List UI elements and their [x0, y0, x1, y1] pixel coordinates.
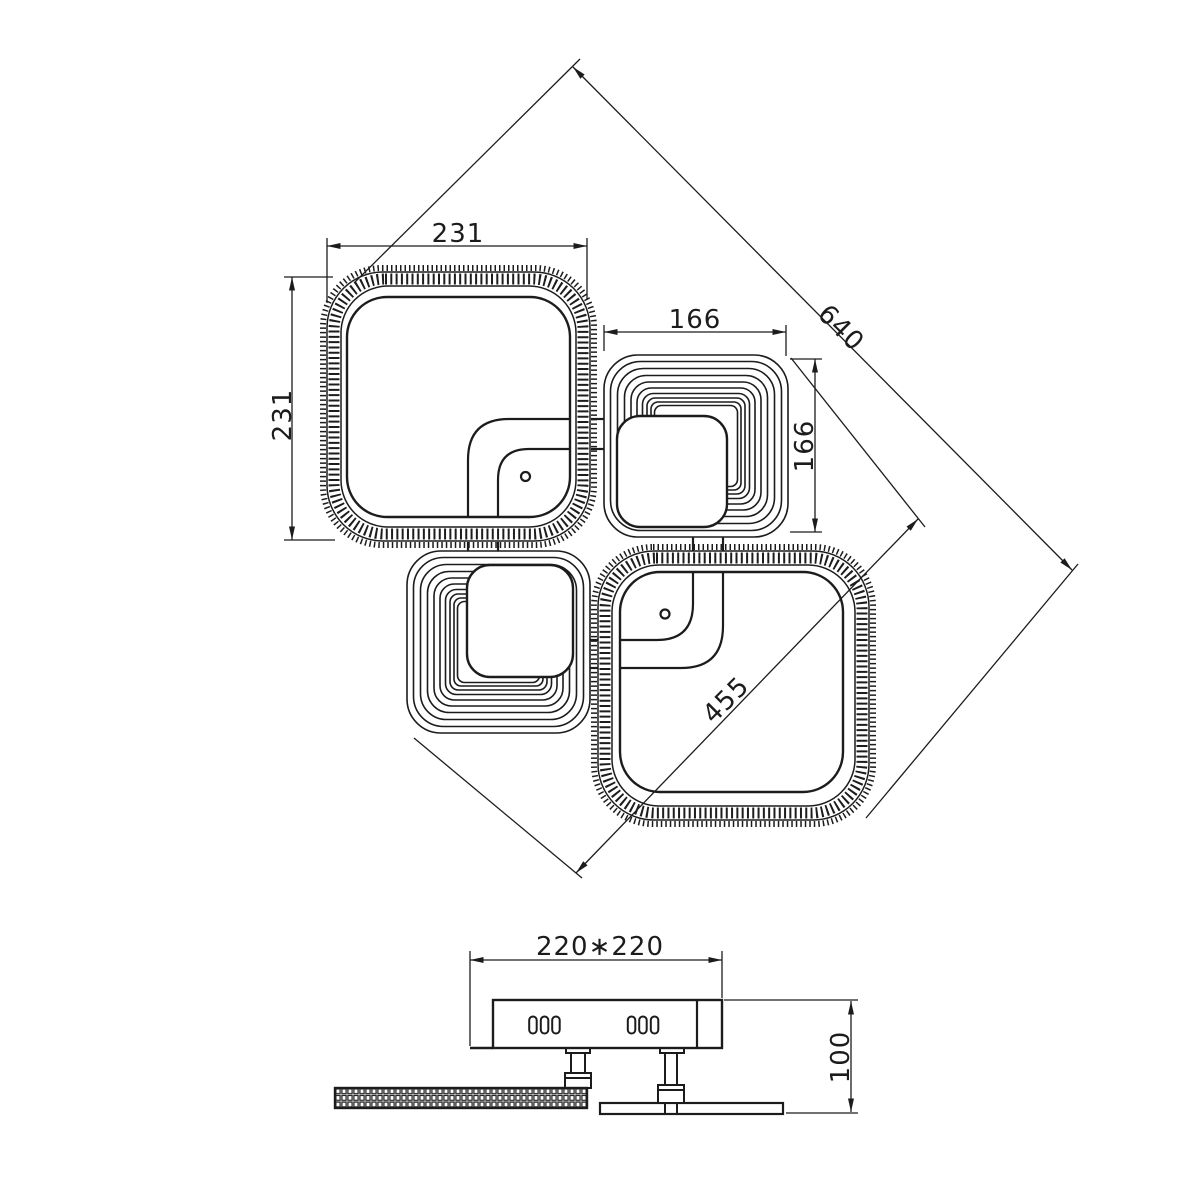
stem-collar: [658, 1085, 684, 1103]
module-top-right: [604, 355, 788, 537]
technical-drawing-page: 231 231 166 166 640 455 220∗220 100: [0, 0, 1200, 1200]
vent-slot: [552, 1017, 560, 1034]
dim-label-small-width: 166: [669, 305, 722, 335]
ceiling-lamp-dimension-drawing: 231 231 166 166 640 455 220∗220 100: [0, 0, 1200, 1200]
module-bottom-left: [407, 551, 590, 733]
stem-collar: [565, 1073, 591, 1088]
vent-slot: [651, 1017, 659, 1034]
vent-slot: [541, 1017, 549, 1034]
left-stem: [565, 1048, 591, 1088]
crystal-panel-section: [335, 1088, 587, 1108]
dim-label-canopy: 220∗220: [536, 932, 664, 962]
diffuser-overlay: [617, 416, 727, 527]
stem-flange: [660, 1048, 684, 1053]
dim-label-small-height: 166: [790, 420, 820, 473]
lamp-face-outline: [347, 297, 570, 517]
dim-label-width: 231: [432, 219, 485, 249]
extension-line: [414, 738, 582, 878]
extension-line: [866, 564, 1078, 818]
ring-panel-section: [600, 1103, 783, 1114]
dim-label-mount-height: 100: [826, 1031, 856, 1084]
stem-flange: [566, 1048, 590, 1053]
extension-line: [354, 59, 580, 283]
module-top-left: [323, 268, 594, 545]
dimension-canopy-220: [470, 951, 722, 1046]
canopy-box: [470, 1000, 722, 1048]
side-view: [335, 951, 858, 1114]
dim-label-diagonal-overall: 640: [811, 299, 869, 357]
diffuser-overlay: [467, 565, 573, 677]
canopy-outline: [493, 1000, 722, 1048]
vent-slot: [628, 1017, 636, 1034]
vent-slots: [529, 1017, 658, 1034]
vent-slot: [529, 1017, 537, 1034]
top-view: [284, 59, 1078, 878]
vent-slot: [639, 1017, 647, 1034]
dim-label-height: 231: [268, 389, 298, 442]
